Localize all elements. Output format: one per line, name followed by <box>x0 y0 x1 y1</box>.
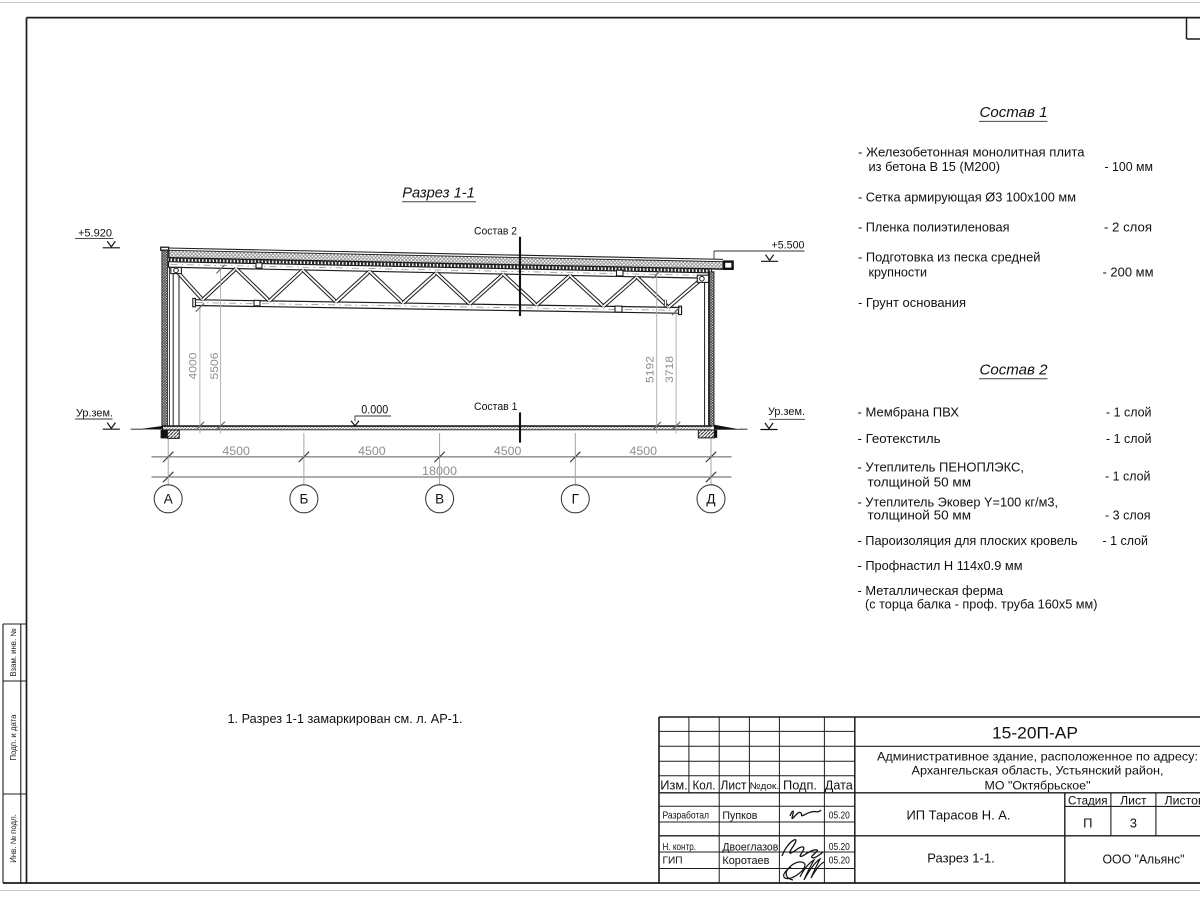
svg-text:Ур.зем.: Ур.зем. <box>768 406 805 418</box>
svg-text:Изм.: Изм. <box>660 778 688 792</box>
svg-text:3718: 3718 <box>664 356 676 383</box>
svg-text:05.20: 05.20 <box>829 811 850 822</box>
svg-text:Коротаев: Коротаев <box>722 855 769 867</box>
svg-text:3: 3 <box>1130 816 1137 831</box>
svg-text:ГИП: ГИП <box>663 855 683 866</box>
svg-text:- Пароизоляция для плоских кро: - Пароизоляция для плоских кровель <box>858 534 1078 548</box>
svg-text:- 1 слой: - 1 слой <box>1105 470 1151 484</box>
svg-text:(с торца балка - проф. труба 1: (с торца балка - проф. труба 160х5 мм) <box>865 598 1098 612</box>
svg-text:5192: 5192 <box>644 356 656 383</box>
svg-text:Состав 2: Состав 2 <box>474 225 517 237</box>
svg-text:№док.: №док. <box>750 781 780 792</box>
svg-text:Б: Б <box>299 492 308 507</box>
svg-text:Разрез 1-1.: Разрез 1-1. <box>927 851 994 866</box>
svg-text:Стадия: Стадия <box>1068 795 1108 808</box>
svg-text:толщиной 50 мм: толщиной 50 мм <box>868 476 972 490</box>
svg-text:Лист: Лист <box>721 778 747 792</box>
svg-text:4500: 4500 <box>222 444 250 458</box>
svg-text:Подп. и дата: Подп. и дата <box>9 714 18 761</box>
svg-text:Лист: Лист <box>1120 795 1147 808</box>
svg-text:Инв. № подл.: Инв. № подл. <box>9 814 18 863</box>
svg-text:- Утеплитель ПЕНОПЛЭКС,: - Утеплитель ПЕНОПЛЭКС, <box>858 461 1025 475</box>
svg-text:Состав 1: Состав 1 <box>474 401 518 413</box>
svg-text:- Грунт основания: - Грунт основания <box>858 296 966 310</box>
svg-text:А: А <box>164 492 173 507</box>
svg-text:Листов: Листов <box>1165 795 1200 808</box>
svg-text:толщиной 50 мм: толщиной 50 мм <box>868 509 972 523</box>
svg-text:ИП Тарасов Н. А.: ИП Тарасов Н. А. <box>907 807 1011 822</box>
svg-text:4500: 4500 <box>358 444 386 458</box>
svg-text:Н. контр.: Н. контр. <box>663 842 697 853</box>
svg-text:П: П <box>1083 816 1092 831</box>
svg-text:1. Разрез 1-1 замаркирован см.: 1. Разрез 1-1 замаркирован см. л. АР-1. <box>228 712 463 726</box>
svg-text:- Пленка полиэтиленовая: - Пленка полиэтиленовая <box>858 221 1010 235</box>
svg-text:В: В <box>435 492 444 507</box>
svg-text:Состав 2: Состав 2 <box>980 363 1048 379</box>
svg-text:- Профнастил Н 114х0.9 мм: - Профнастил Н 114х0.9 мм <box>858 559 1023 573</box>
svg-text:- Утеплитель Эковер Y=100 кг/м: - Утеплитель Эковер Y=100 кг/м3, <box>858 496 1059 510</box>
svg-text:- 1 слой: - 1 слой <box>1106 432 1152 446</box>
svg-text:- 1 слой: - 1 слой <box>1103 534 1149 548</box>
svg-text:4500: 4500 <box>494 444 522 458</box>
svg-text:Кол.: Кол. <box>693 778 716 792</box>
svg-text:+5.920: +5.920 <box>78 227 112 239</box>
svg-text:- 200 мм: - 200 мм <box>1103 266 1154 280</box>
svg-text:Дата: Дата <box>825 778 853 792</box>
svg-text:крупности: крупности <box>869 266 928 280</box>
svg-text:- Геотекстиль: - Геотекстиль <box>858 432 941 446</box>
svg-text:0.000: 0.000 <box>361 404 388 417</box>
svg-text:- 100 мм: - 100 мм <box>1105 160 1154 174</box>
svg-text:05.20: 05.20 <box>829 856 850 867</box>
svg-text:15-20П-АР: 15-20П-АР <box>992 724 1078 743</box>
svg-text:Двоеглазов: Двоеглазов <box>722 841 778 853</box>
svg-text:из бетона В 15 (М200): из бетона В 15 (М200) <box>869 160 1001 174</box>
svg-text:МО "Октябрьское": МО "Октябрьское" <box>985 778 1091 792</box>
svg-text:- Металлическая ферма: - Металлическая ферма <box>858 584 1004 598</box>
svg-text:- 2 слоя: - 2 слоя <box>1104 221 1152 235</box>
svg-text:- 3 слоя: - 3 слоя <box>1105 509 1151 523</box>
svg-text:05.20: 05.20 <box>829 842 850 853</box>
svg-text:- 1 слой: - 1 слой <box>1106 406 1152 420</box>
svg-text:Состав 1: Состав 1 <box>980 105 1048 121</box>
svg-text:4500: 4500 <box>630 444 658 458</box>
svg-text:Взам. инв. №: Взам. инв. № <box>9 628 18 676</box>
svg-text:Ур.зем.: Ур.зем. <box>76 408 113 420</box>
svg-text:Разработал: Разработал <box>663 810 710 822</box>
svg-text:+5.500: +5.500 <box>772 239 805 251</box>
svg-text:- Подготовка из песка средней: - Подготовка из песка средней <box>858 251 1041 265</box>
svg-text:Подп.: Подп. <box>783 778 817 792</box>
svg-text:5506: 5506 <box>209 353 221 380</box>
svg-text:- Железобетонная монолитная п: - Железобетонная монолитная плита <box>858 146 1085 160</box>
svg-text:Разрез 1-1: Разрез 1-1 <box>402 185 475 202</box>
svg-text:- Сетка армирующая Ø3 100х100: - Сетка армирующая Ø3 100х100 мм <box>858 191 1076 205</box>
svg-text:ООО "Альянс": ООО "Альянс" <box>1103 851 1185 866</box>
svg-text:Пупков: Пупков <box>722 810 757 822</box>
svg-text:Административное здание, распо: Административное здание, расположенное п… <box>877 749 1198 763</box>
svg-text:- Мембрана ПВХ: - Мембрана ПВХ <box>858 406 960 420</box>
svg-text:4000: 4000 <box>188 353 200 380</box>
svg-text:Архангельская область, Устьянс: Архангельская область, Устьянский район, <box>912 764 1164 778</box>
svg-text:Д: Д <box>706 492 715 507</box>
svg-text:Г: Г <box>572 492 580 507</box>
